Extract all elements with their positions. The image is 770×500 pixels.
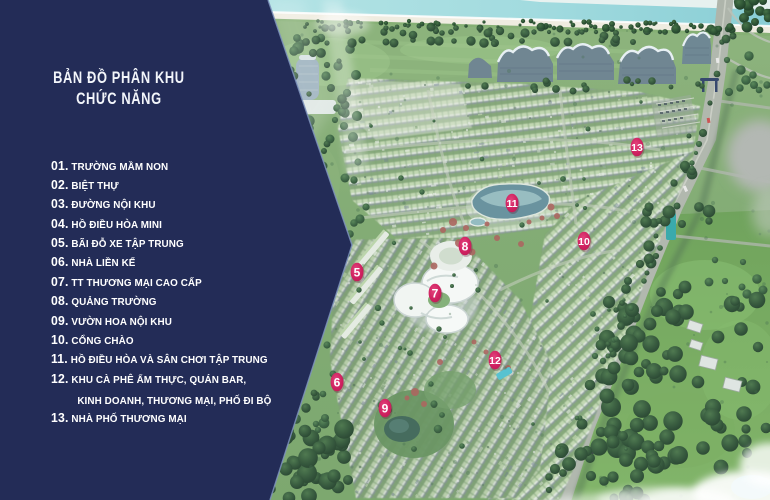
svg-text:9: 9 <box>382 401 389 415</box>
svg-text:5: 5 <box>354 265 361 279</box>
svg-text:10: 10 <box>578 236 590 248</box>
svg-text:7: 7 <box>432 286 439 300</box>
svg-text:8: 8 <box>462 239 469 253</box>
svg-text:11: 11 <box>506 198 517 210</box>
svg-text:6: 6 <box>334 375 341 389</box>
svg-text:12: 12 <box>489 355 501 367</box>
svg-text:13: 13 <box>631 142 643 154</box>
